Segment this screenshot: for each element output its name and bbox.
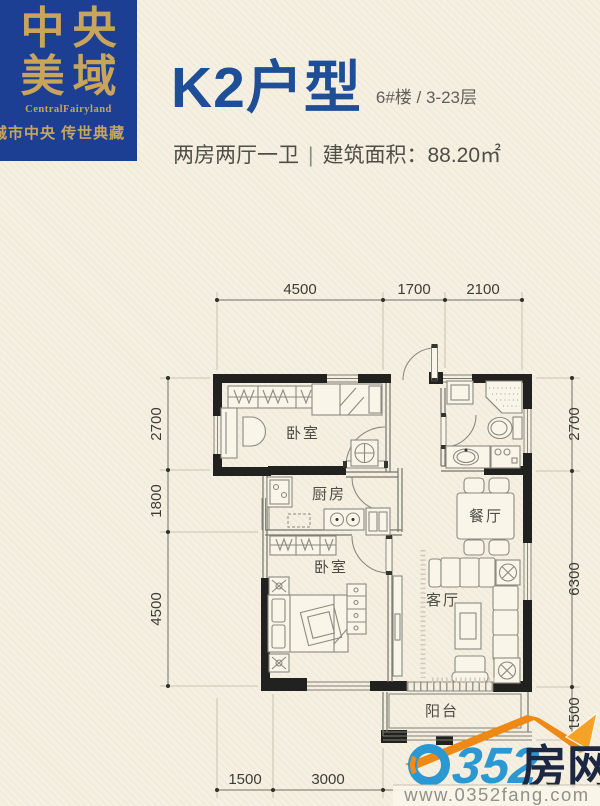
- dim-label-left-1: 2700: [148, 407, 165, 440]
- wardrobe2-icon: [270, 536, 336, 555]
- dim-label-top-3: 2100: [466, 281, 499, 298]
- dim-label-top-2: 1700: [397, 281, 430, 298]
- shower-icon: [486, 381, 522, 413]
- reserved-appliance-outline: [288, 514, 310, 527]
- dim-label-bottom-1: 1500: [228, 771, 261, 788]
- dim-label-right-1: 2700: [566, 407, 583, 440]
- room-label-balcony: 阳台: [425, 703, 459, 720]
- kitchen-sink-icon: [267, 477, 292, 507]
- side-table-icon: [496, 560, 520, 585]
- dim-label-right-2: 6300: [566, 562, 583, 595]
- fan-table-icon: [351, 440, 378, 466]
- bathroom-door-icon: [441, 413, 476, 449]
- dim-label-left-3: 4500: [148, 592, 165, 625]
- nightstand-plant2-icon: [269, 654, 289, 672]
- single-bed-icon: [312, 384, 382, 415]
- bath-sink-icon: [446, 446, 490, 468]
- tv-stand-icon: [393, 576, 402, 676]
- room-label-bedroom-top: 卧室: [286, 425, 320, 442]
- dresser-icon: [347, 584, 366, 634]
- stove-icon: [324, 509, 364, 530]
- dimension-chains: 4500 1700 2100 2700 1800 4500 2700 6300 …: [148, 281, 583, 792]
- dim-label-bottom-2: 3000: [311, 771, 344, 788]
- floorplan-svg: 4500 1700 2100 2700 1800 4500 2700 6300 …: [0, 0, 600, 806]
- wardrobe-icon: [228, 386, 320, 408]
- site-url: www.0352fang.com: [403, 784, 589, 805]
- toilet-icon: [488, 417, 522, 439]
- coffee-table-icon: [455, 603, 481, 649]
- dim-label-top-1: 4500: [283, 281, 316, 298]
- side-table2-icon: [494, 658, 520, 683]
- bedroom-bottom-door-icon: [352, 535, 392, 575]
- bath-cabinet-icon: [447, 381, 473, 404]
- room-label-dining: 餐厅: [469, 508, 503, 525]
- dressing-table-icon: [221, 408, 266, 458]
- room-label-kitchen: 厨房: [312, 486, 346, 503]
- dimension-ticks: [166, 298, 574, 792]
- entry-door-icon: [403, 344, 438, 382]
- nightstand-plant-icon: [269, 577, 289, 595]
- room-label-bedroom-bottom: 卧室: [314, 559, 348, 576]
- poster-page: 中央 美域 CentralFairyland 城市中央 传世典藏 K2户型 6#…: [0, 0, 600, 806]
- room-label-living: 客厅: [426, 592, 460, 609]
- dim-label-left-2: 1800: [148, 484, 165, 517]
- kitchen-door-icon: [352, 477, 386, 511]
- washing-machine-icon: [491, 446, 520, 468]
- fridge-icon: [366, 508, 390, 535]
